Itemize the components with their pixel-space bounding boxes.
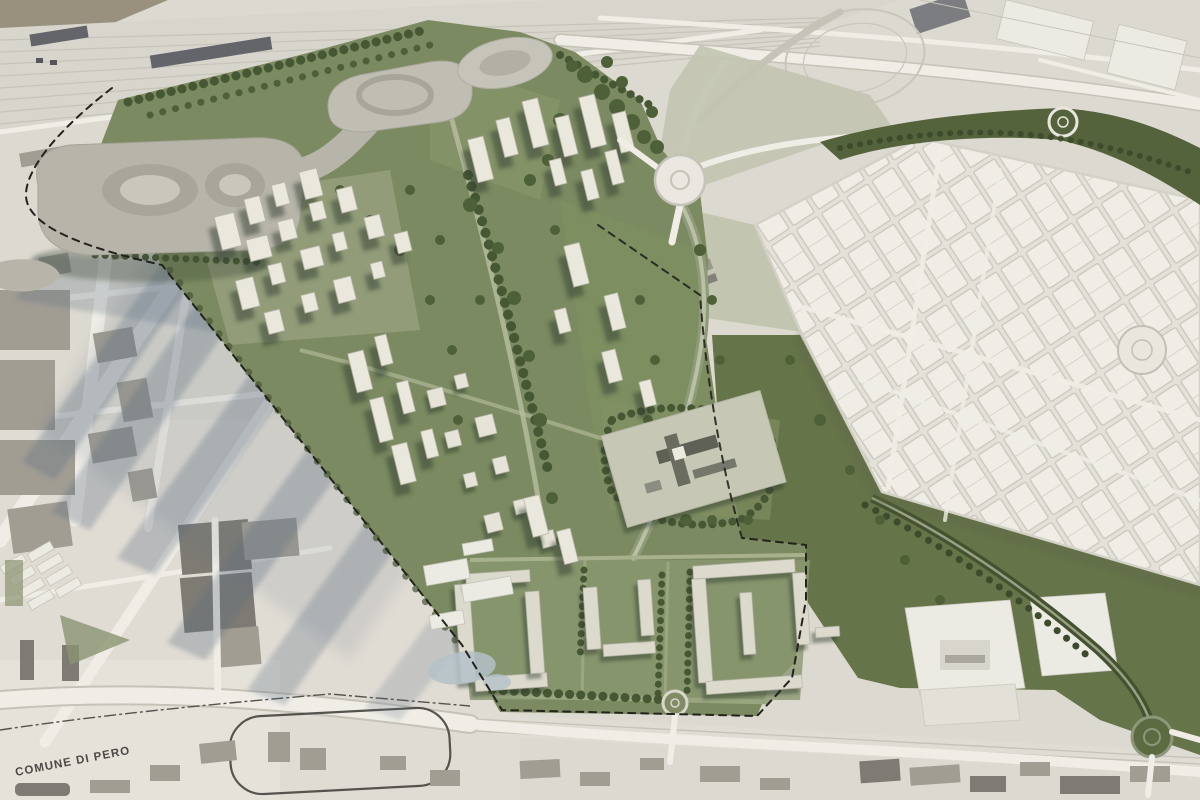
southeast-roundabout xyxy=(1132,717,1172,757)
masterplan-svg: COMUNE DI PERO xyxy=(0,0,1200,800)
masterplan-rendering: COMUNE DI PERO xyxy=(0,0,1200,800)
industrial-roof xyxy=(920,684,1020,726)
circular-plaza xyxy=(1118,326,1166,374)
